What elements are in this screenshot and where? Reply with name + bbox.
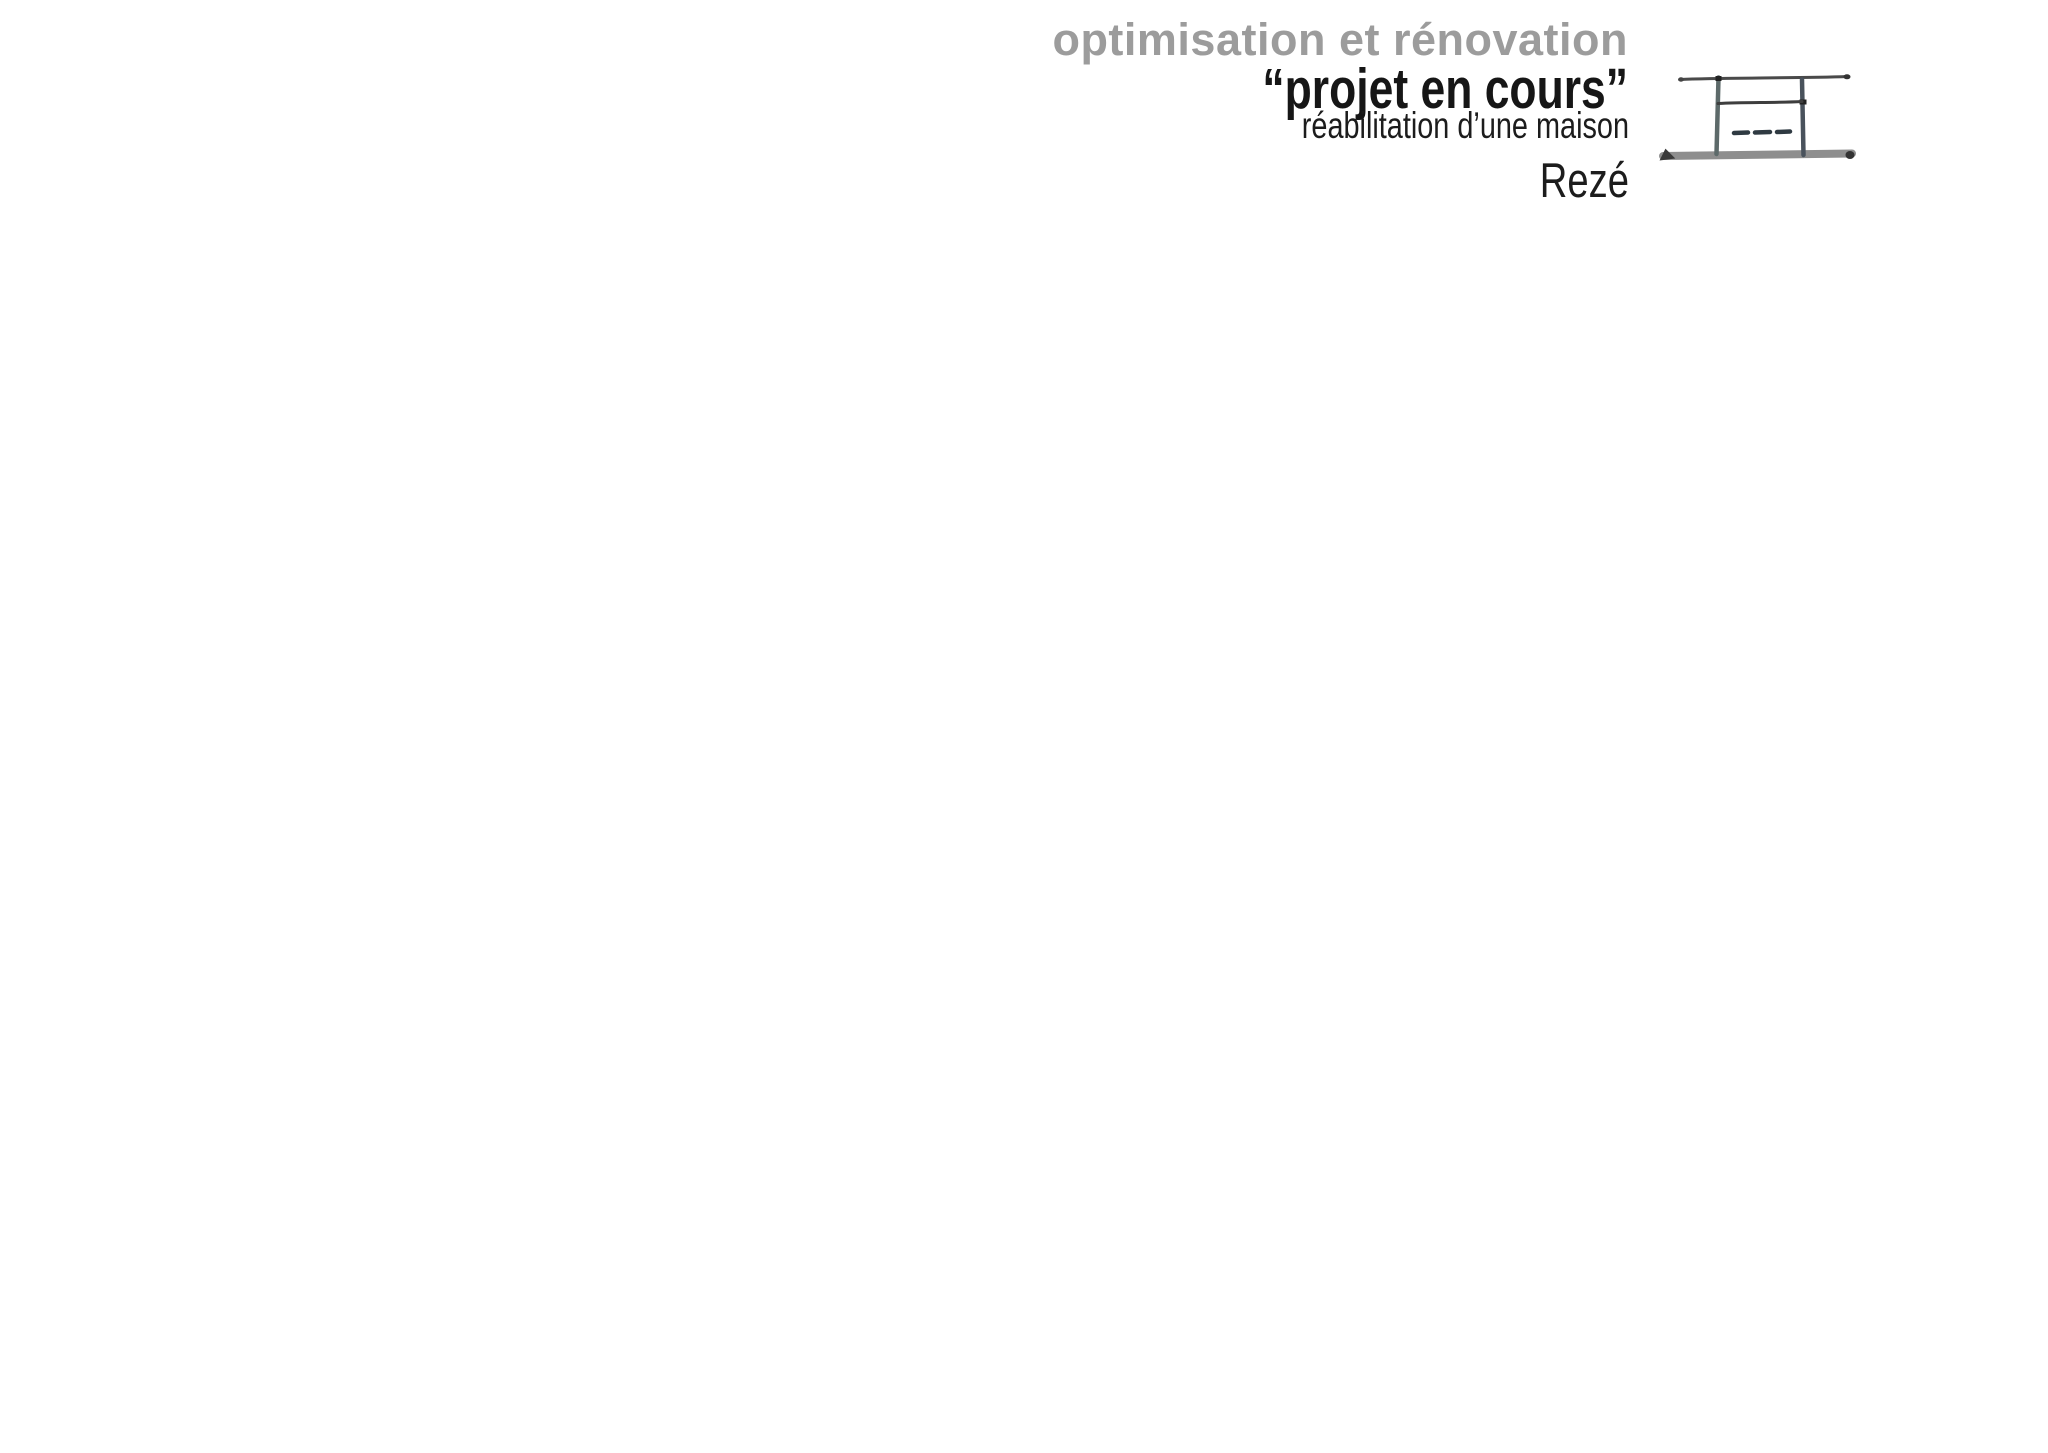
svg-text:réabilitation d’une maison: réabilitation d’une maison <box>1302 106 1629 147</box>
svg-text:Rezé: Rezé <box>1540 154 1629 209</box>
